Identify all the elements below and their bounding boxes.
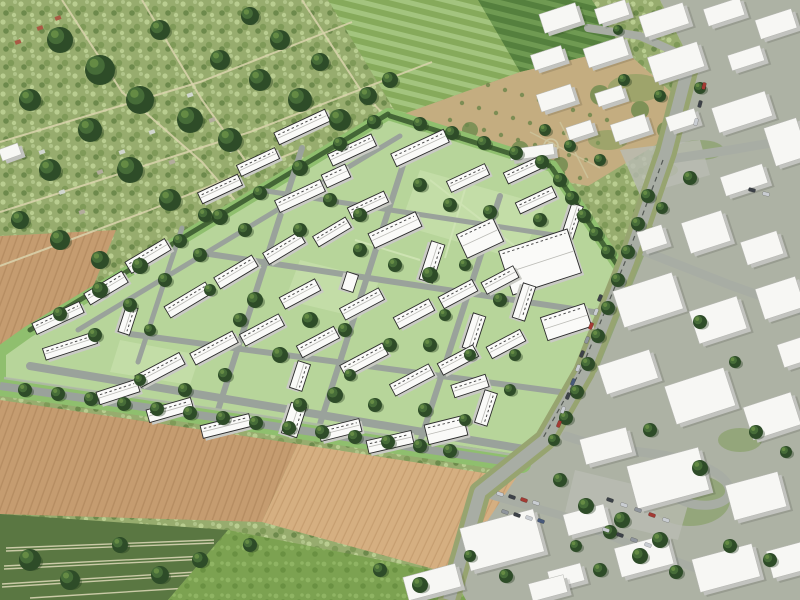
3d-city-viewport[interactable] [0,0,800,600]
scene-svg [0,0,800,600]
